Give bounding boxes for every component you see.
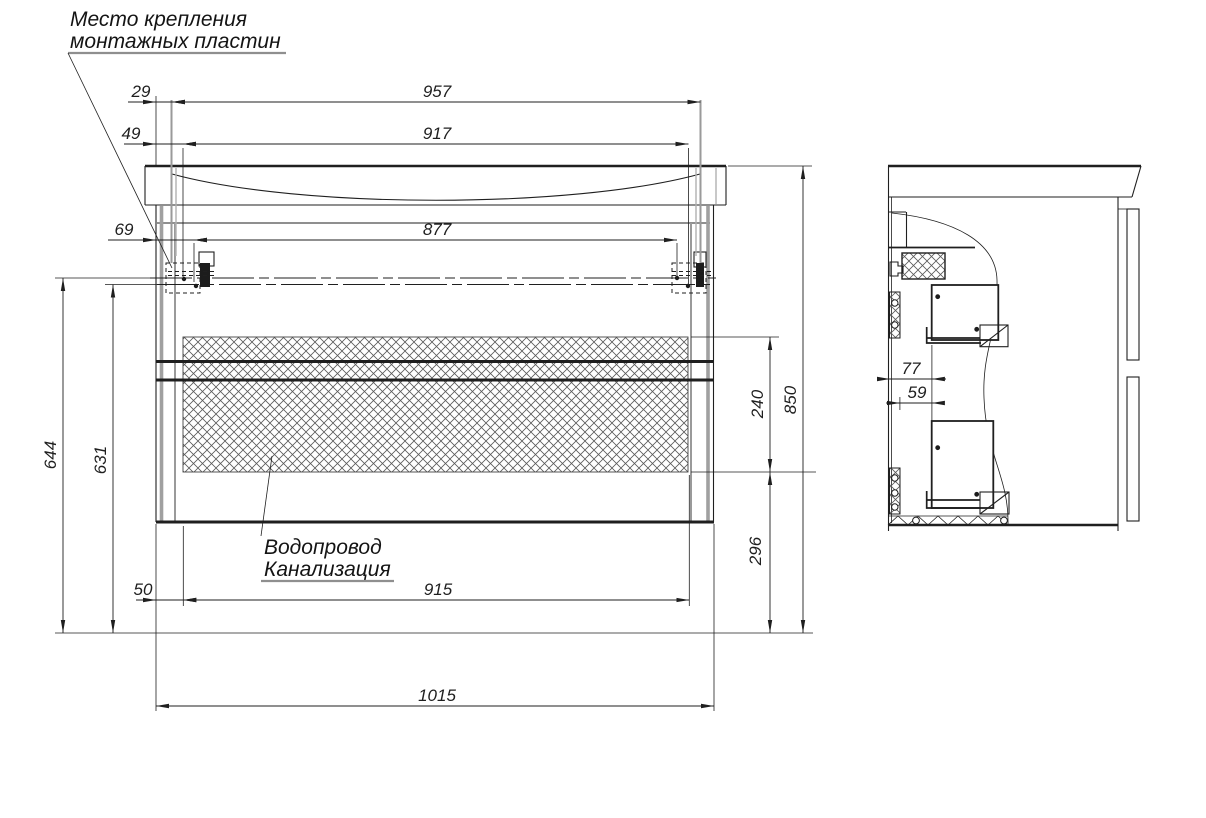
dim-240: 240 — [748, 337, 770, 472]
dim-29: 29 — [128, 82, 195, 102]
dim-917-value: 917 — [423, 124, 452, 143]
dim-644: 644 — [41, 278, 63, 633]
drawer-front-hatch-panel — [183, 337, 688, 472]
dim-1015-value: 1015 — [418, 686, 456, 705]
dim-69-value: 69 — [115, 220, 134, 239]
dim-631-value: 631 — [91, 446, 110, 474]
note-mounting-line1: Место крепления — [70, 8, 247, 31]
lower-drawer-box — [927, 421, 1009, 514]
note-plumbing-line1: Водопровод — [264, 536, 382, 559]
note-mounting-line2: монтажных пластин — [70, 30, 281, 53]
dim-850: 850 — [781, 166, 803, 633]
side-body — [888, 166, 1139, 531]
wall-rail-upper — [890, 292, 901, 338]
note-plumbing-line2: Канализация — [264, 558, 391, 581]
side-lower-drawer-front — [1127, 377, 1139, 521]
note-mounting-plates: Место крепления монтажных пластин — [68, 8, 286, 268]
side-upper-drawer-front — [1127, 209, 1139, 360]
dim-877-value: 877 — [423, 220, 452, 239]
bottom-panel-section — [888, 516, 1008, 525]
dim-915: 915 — [183, 580, 689, 600]
dim-1015: 1015 — [156, 686, 714, 706]
note-plumbing: Водопровод Канализация — [261, 456, 394, 581]
side-countertop — [888, 166, 1141, 197]
technical-drawing: 29 957 49 917 69 877 644 — [0, 0, 1206, 818]
dim-49: 49 — [122, 124, 197, 144]
dim-917: 917 — [183, 124, 689, 144]
dim-240-value: 240 — [748, 389, 767, 419]
dim-59-value: 59 — [908, 383, 927, 402]
dim-59: 59 — [886, 383, 944, 410]
washbasin — [145, 166, 726, 205]
dim-296: 296 — [746, 472, 770, 633]
basin-curve — [172, 174, 700, 200]
dim-77-value: 77 — [902, 359, 921, 378]
front-view: 29 957 49 917 69 877 644 — [41, 8, 816, 711]
slide-rail-section — [902, 253, 945, 279]
mounting-plate-left — [166, 252, 216, 293]
dim-957: 957 — [172, 82, 701, 102]
dim-631: 631 — [91, 285, 113, 634]
dim-50: 50 — [134, 580, 197, 600]
dim-915-value: 915 — [424, 580, 453, 599]
dim-850-value: 850 — [781, 385, 800, 414]
dim-957-value: 957 — [423, 82, 452, 101]
dim-644-value: 644 — [41, 441, 60, 469]
dim-296-value: 296 — [746, 536, 765, 566]
side-view: 77 59 — [877, 166, 1141, 531]
dim-50-value: 50 — [134, 580, 153, 599]
clip-bracket — [890, 262, 903, 276]
dim-29-value: 29 — [131, 82, 151, 101]
wall-rail-lower — [890, 468, 901, 514]
dim-49-value: 49 — [122, 124, 141, 143]
upper-drawer-box — [927, 285, 1008, 347]
drawing-canvas: 29 957 49 917 69 877 644 — [0, 0, 1206, 818]
